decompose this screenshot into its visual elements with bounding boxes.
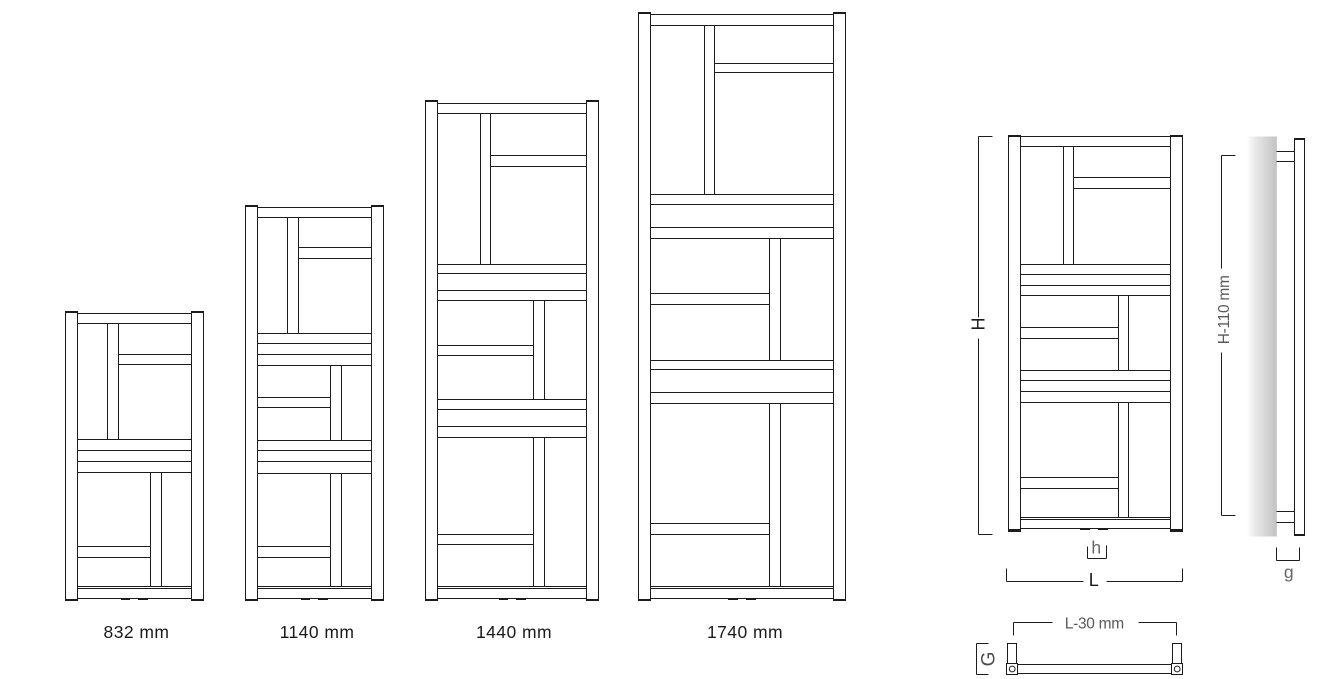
svg-text:L: L: [1089, 570, 1099, 590]
svg-text:1440 mm: 1440 mm: [476, 622, 552, 642]
svg-text:G: G: [979, 652, 1000, 667]
svg-text:H: H: [969, 318, 989, 331]
svg-text:1740 mm: 1740 mm: [707, 622, 783, 642]
svg-text:H-110 mm: H-110 mm: [1216, 275, 1233, 344]
svg-text:1140 mm: 1140 mm: [280, 622, 355, 642]
svg-text:h: h: [1091, 537, 1101, 557]
svg-text:L-30 mm: L-30 mm: [1065, 615, 1124, 632]
svg-text:832 mm: 832 mm: [104, 622, 170, 642]
svg-text:g: g: [1284, 562, 1294, 582]
